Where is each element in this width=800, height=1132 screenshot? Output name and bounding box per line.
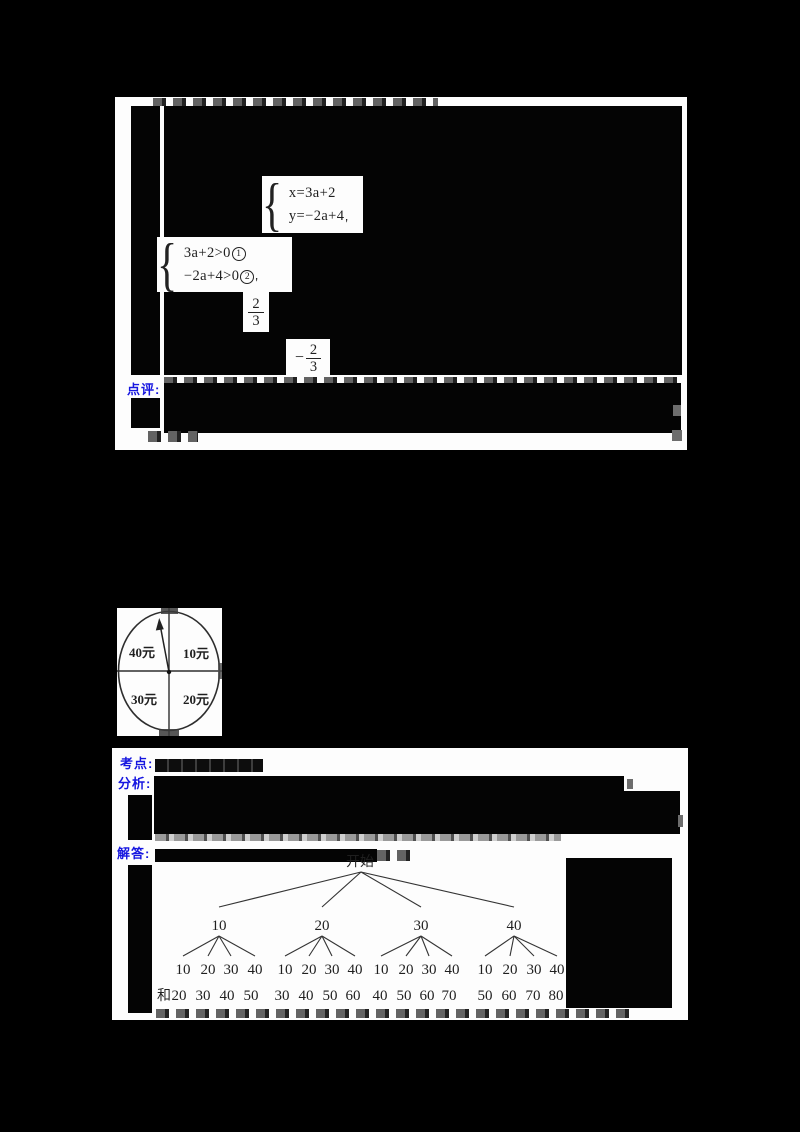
redacted-column xyxy=(128,795,152,840)
tree-branch-line xyxy=(361,872,421,907)
tree-sum-value: 20 xyxy=(172,988,187,1004)
tree-branch-line xyxy=(514,936,534,956)
tree-leaf-value: 30 xyxy=(325,962,340,978)
redacted-text-fragment xyxy=(148,431,198,442)
tree-sum-value: 60 xyxy=(346,988,361,1004)
redacted-text-fragment xyxy=(678,815,683,827)
redacted-column xyxy=(128,865,152,1013)
fraction-minus-two-thirds: − 2 3 xyxy=(286,339,330,377)
tree-branch-line xyxy=(421,936,452,956)
equation-line: x=3a+2 xyxy=(289,182,345,205)
spinner-label-20yuan: 20元 xyxy=(175,692,217,707)
tree-sum-value: 50 xyxy=(397,988,412,1004)
redacted-exam-point-text xyxy=(155,759,263,772)
redacted-text-fragment xyxy=(627,779,633,789)
redacted-text-fragment xyxy=(673,405,681,416)
circled-number-1: 1 xyxy=(232,247,246,261)
spinner-diagram-block: 40元 10元 30元 20元 xyxy=(117,608,222,736)
tree-sum-value: 70 xyxy=(442,988,457,1004)
tree-root-label: 开始 xyxy=(346,853,374,869)
tree-sum-value: 50 xyxy=(323,988,338,1004)
redacted-text-fragment xyxy=(672,430,682,441)
tree-sum-value: 30 xyxy=(275,988,290,1004)
tree-diagram: 开始10102020303040405020103020403050406030… xyxy=(152,852,572,1010)
comma-mark: ' xyxy=(345,217,348,233)
equation-line: y=−2a+4 xyxy=(289,205,345,228)
tree-sum-value: 70 xyxy=(526,988,541,1004)
spinner-label-10yuan: 10元 xyxy=(175,646,217,661)
tree-leaf-value: 20 xyxy=(201,962,216,978)
tree-level1-value: 30 xyxy=(414,918,429,934)
scan-smudge xyxy=(159,729,179,736)
fraction-numerator: 2 xyxy=(306,342,321,359)
tree-sum-value: 50 xyxy=(478,988,493,1004)
spinner-label-30yuan: 30元 xyxy=(123,692,165,707)
tree-sum-value: 60 xyxy=(420,988,435,1004)
tree-leaf-value: 10 xyxy=(478,962,493,978)
comma-mark: ' xyxy=(255,276,258,292)
tree-branch-line xyxy=(406,936,421,956)
spinner-graphic xyxy=(117,608,222,736)
spinner-label-40yuan: 40元 xyxy=(121,645,163,660)
tree-level1-value: 20 xyxy=(315,918,330,934)
fraction-numerator: 2 xyxy=(248,296,263,313)
fraction-two-thirds: 2 3 xyxy=(243,292,269,332)
tree-sum-value: 40 xyxy=(299,988,314,1004)
equation-line: −2a+4>02 xyxy=(184,265,255,288)
tree-leaf-value: 10 xyxy=(374,962,389,978)
spinner-arrowhead xyxy=(156,618,164,631)
tree-leaf-value: 30 xyxy=(224,962,239,978)
circled-number-2: 2 xyxy=(240,270,254,284)
redacted-area xyxy=(566,858,672,1008)
redacted-column xyxy=(131,106,160,375)
tree-leaf-value: 40 xyxy=(348,962,363,978)
solution-block-2: 考点: 分析: 解答: 开始10102020303040405020103020… xyxy=(112,748,688,1020)
tree-branch-line xyxy=(381,936,421,956)
tree-leaf-value: 40 xyxy=(445,962,460,978)
tree-branch-line xyxy=(514,936,557,956)
redacted-text-fragment xyxy=(156,1009,630,1018)
comment-label: 点评: xyxy=(127,383,160,397)
left-brace: { xyxy=(157,231,177,298)
tree-leaf-value: 20 xyxy=(503,962,518,978)
exam-point-label: 考点: xyxy=(120,757,153,771)
answer-label: 解答: xyxy=(117,847,150,861)
redacted-comment-body xyxy=(164,383,681,433)
redacted-text-fragment xyxy=(155,834,561,841)
equation-line: 3a+2>01 xyxy=(184,242,255,265)
redacted-text-fragment xyxy=(153,98,438,106)
redacted-analysis-body xyxy=(154,791,680,834)
tree-branch-line xyxy=(361,872,514,907)
tree-leaf-value: 10 xyxy=(176,962,191,978)
fraction-denominator: 3 xyxy=(310,359,317,375)
tree-sum-row-label: 和 xyxy=(157,987,171,1003)
tree-branch-line xyxy=(219,872,361,907)
fraction-denominator: 3 xyxy=(252,313,259,329)
tree-sum-value: 40 xyxy=(220,988,235,1004)
spinner-hub xyxy=(167,670,171,674)
equation-system-inequalities: { 3a+2>01 −2a+4>02 ' xyxy=(157,237,292,292)
tree-leaf-value: 20 xyxy=(399,962,414,978)
scanned-document-canvas: { x=3a+2 y=−2a+4 ' { 3a+2>01 −2a+4>02 ' … xyxy=(0,0,800,1132)
left-brace: { xyxy=(262,171,282,238)
tree-leaf-value: 40 xyxy=(550,962,565,978)
tree-leaf-value: 30 xyxy=(422,962,437,978)
equation-system-xy: { x=3a+2 y=−2a+4 ' xyxy=(262,176,363,233)
redacted-analysis-line-1 xyxy=(154,776,624,791)
tree-leaf-value: 40 xyxy=(248,962,263,978)
tree-leaf-value: 10 xyxy=(278,962,293,978)
scan-smudge xyxy=(218,663,222,679)
solution-block-1: { x=3a+2 y=−2a+4 ' { 3a+2>01 −2a+4>02 ' … xyxy=(115,97,687,450)
scan-smudge xyxy=(161,608,178,614)
tree-level1-value: 10 xyxy=(212,918,227,934)
tree-sum-value: 80 xyxy=(549,988,564,1004)
minus-sign: − xyxy=(295,349,304,367)
tree-level1-value: 40 xyxy=(507,918,522,934)
tree-sum-value: 30 xyxy=(196,988,211,1004)
tree-branch-line xyxy=(485,936,514,956)
tree-leaf-value: 30 xyxy=(527,962,542,978)
redacted-column xyxy=(131,398,160,428)
analysis-label: 分析: xyxy=(118,777,151,791)
tree-sum-value: 40 xyxy=(373,988,388,1004)
tree-leaf-value: 20 xyxy=(302,962,317,978)
tree-sum-value: 50 xyxy=(244,988,259,1004)
tree-sum-value: 60 xyxy=(502,988,517,1004)
tree-branch-line xyxy=(285,936,322,956)
